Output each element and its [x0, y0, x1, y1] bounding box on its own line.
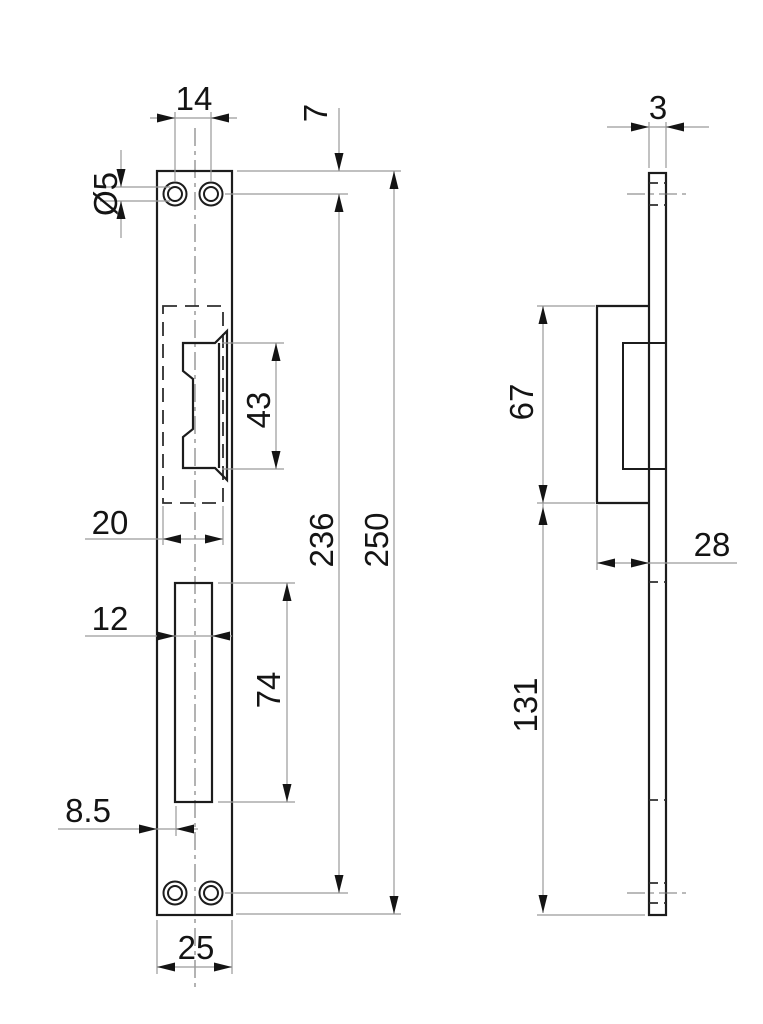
- dim-label-body-depth: 28: [694, 526, 731, 563]
- keeper-lip: [623, 343, 666, 469]
- strike-keeper: [183, 331, 227, 480]
- dim-label-top-edge-to-hole: 7: [297, 104, 334, 122]
- front-view: 14 7 Ø5 43 20 12: [58, 80, 401, 988]
- dim-label-body-height: 67: [503, 384, 540, 421]
- dim-lines: [537, 503, 645, 915]
- screw-hole-bottom-right: [200, 882, 223, 905]
- screw-hole-top-right: [200, 183, 223, 206]
- drawing-canvas: 14 7 Ø5 43 20 12: [0, 0, 763, 1024]
- dim-label-body-to-bottom: 131: [507, 677, 544, 732]
- dimension-slot-height: 74: [218, 583, 295, 802]
- side-view: 3 67 131 28: [503, 89, 737, 915]
- dim-label-plate-width: 25: [178, 929, 215, 966]
- dim-label-slot-height: 74: [250, 672, 287, 709]
- hole-outer: [200, 882, 223, 905]
- dim-lines: [537, 306, 595, 503]
- hole-inner: [168, 187, 182, 201]
- dimension-plate-width: 25: [157, 920, 232, 974]
- hidden-edges: [649, 183, 666, 903]
- dim-label-slot-width: 12: [92, 600, 129, 637]
- dimension-hole-spacing: 14: [150, 80, 237, 182]
- hole-inner: [204, 187, 218, 201]
- dim-label-hole-diameter: Ø5: [87, 172, 124, 216]
- technical-drawing: 14 7 Ø5 43 20 12: [0, 0, 763, 1024]
- hole-outer: [200, 183, 223, 206]
- dimension-plate-thickness: 3: [607, 89, 709, 168]
- hole-outer: [164, 183, 187, 206]
- dim-label-hole-centers-span: 236: [303, 512, 340, 567]
- side-plate-outline: [649, 173, 666, 915]
- hole-inner: [204, 886, 218, 900]
- dimension-slot-offset: 8.5: [58, 792, 198, 836]
- dimension-body-height: 67: [503, 306, 595, 503]
- dimension-slot-width: 12: [85, 600, 232, 641]
- dim-label-plate-length: 250: [358, 512, 395, 567]
- dim-label-keeper-height: 43: [240, 392, 277, 429]
- dimension-top-edge-to-hole: 7: [225, 104, 401, 194]
- hole-inner: [168, 886, 182, 900]
- screw-hole-bottom-left: [164, 882, 187, 905]
- screw-hole-top-left: [164, 183, 187, 206]
- dim-label-cutout-width: 20: [92, 504, 129, 541]
- hole-outer: [164, 882, 187, 905]
- dim-label-plate-thickness: 3: [649, 89, 667, 126]
- dim-lines: [607, 122, 709, 168]
- dimension-body-to-bottom: 131: [507, 503, 645, 915]
- dim-arrows: [335, 153, 344, 171]
- hole-centerlines: [627, 194, 690, 893]
- dim-label-hole-spacing: 14: [176, 80, 213, 117]
- lock-slot: [175, 583, 212, 802]
- dim-label-slot-offset: 8.5: [65, 792, 111, 829]
- dimension-cutout-width: 20: [85, 504, 223, 545]
